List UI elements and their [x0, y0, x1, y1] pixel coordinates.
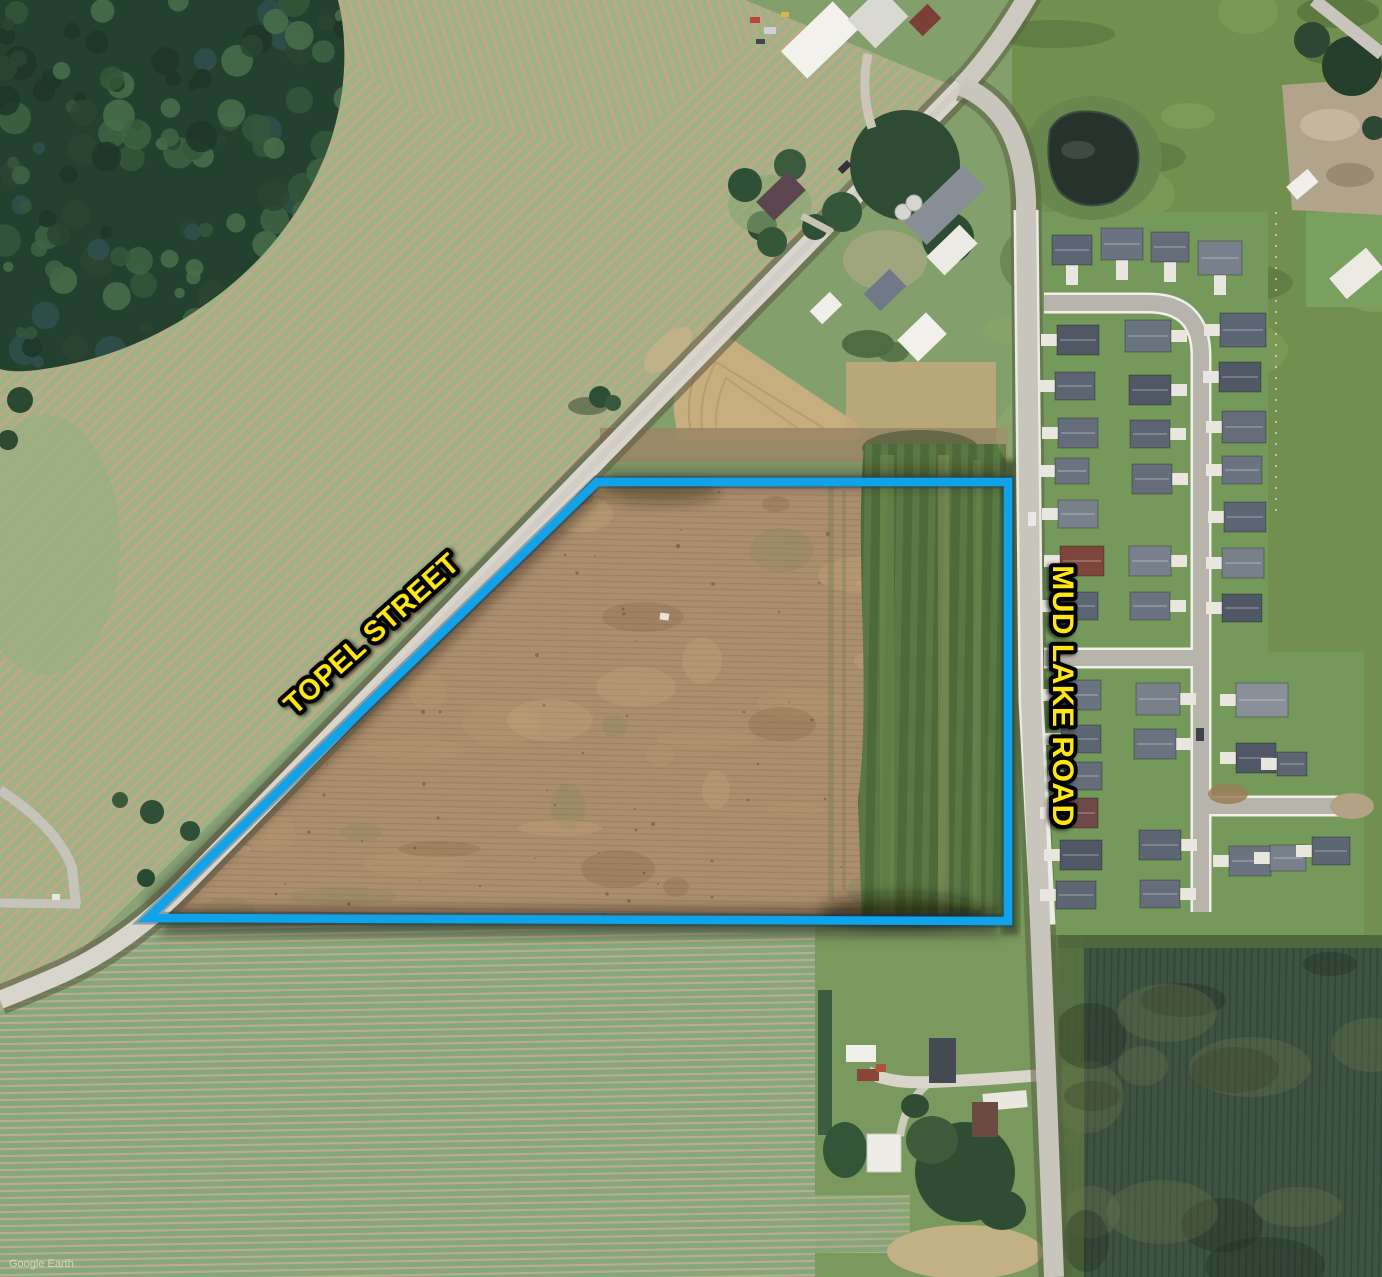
- soil-speck: [824, 798, 827, 801]
- soil-speck: [421, 710, 425, 714]
- soil-mottle: [507, 699, 593, 741]
- soil-speck: [626, 715, 629, 718]
- soil-mottle: [766, 803, 826, 815]
- driveway: [1164, 262, 1176, 282]
- soil-speck: [651, 822, 655, 826]
- tree-canopy: [132, 119, 143, 130]
- soil-speck: [635, 640, 637, 642]
- tree-canopy: [91, 0, 115, 23]
- soil-speck: [818, 582, 820, 584]
- soil-speck: [743, 711, 746, 714]
- tree-canopy: [64, 23, 81, 40]
- tree-canopy: [2, 18, 15, 31]
- driveway: [1254, 852, 1270, 864]
- tree-canopy: [12, 166, 30, 184]
- driveway: [1213, 855, 1229, 867]
- corn-mottle: [1254, 1187, 1342, 1227]
- tree-canopy: [24, 327, 37, 340]
- soil-mottle: [682, 638, 722, 684]
- soil-speck: [710, 895, 713, 898]
- tree-canopy: [263, 137, 284, 158]
- soil-speck: [422, 782, 426, 786]
- corn-mottle: [1106, 1180, 1218, 1244]
- soil-speck: [535, 653, 539, 657]
- soil-mottle: [581, 850, 655, 888]
- tree-canopy: [3, 262, 13, 272]
- tree-canopy: [184, 224, 201, 241]
- driveway: [1180, 693, 1196, 705]
- driveway: [1039, 380, 1055, 392]
- soil-speck: [534, 857, 536, 859]
- driveway: [1204, 324, 1220, 336]
- tree-canopy: [194, 48, 217, 71]
- tree-canopy: [161, 98, 181, 118]
- soil-speck: [594, 555, 596, 557]
- tree-canopy: [192, 69, 211, 88]
- soil-mottle: [663, 877, 689, 897]
- tree-canopy: [174, 288, 184, 298]
- tree-canopy: [317, 15, 334, 32]
- watermark: Google Earth: [9, 1258, 74, 1270]
- tree-canopy: [71, 100, 97, 126]
- driveway: [1171, 330, 1187, 342]
- soil-mottle: [762, 496, 790, 512]
- soil-speck: [680, 529, 682, 531]
- soil-speck: [418, 879, 420, 881]
- soil-speck: [275, 893, 278, 896]
- corn-mottle: [1053, 1003, 1127, 1069]
- dirt-road-end: [1330, 793, 1374, 819]
- soil-speck: [347, 902, 351, 906]
- tree-canopy: [92, 142, 122, 172]
- soil-speck: [747, 799, 750, 802]
- tree-canopy: [161, 250, 179, 268]
- soil-mottle: [409, 674, 447, 710]
- driveway: [1261, 758, 1277, 770]
- driveway: [1206, 602, 1222, 614]
- silo: [906, 195, 922, 211]
- soil-speck: [582, 752, 585, 755]
- tree-canopy: [241, 35, 264, 58]
- tree-canopy: [130, 271, 157, 298]
- tree-canopy: [45, 260, 64, 279]
- driveway: [1176, 738, 1192, 750]
- soil-speck: [811, 719, 814, 722]
- tree-canopy: [216, 135, 226, 145]
- driveway: [1208, 511, 1224, 523]
- tree-canopy: [125, 247, 153, 275]
- road-label-mud-lake-road: MUD LAKE ROAD: [1046, 565, 1079, 827]
- driveway: [1214, 275, 1226, 295]
- soil-speck: [598, 852, 600, 854]
- soil-speck: [605, 892, 609, 896]
- scrub-mottle: [1161, 103, 1215, 129]
- soil-mottle: [702, 771, 730, 809]
- tree-canopy: [110, 247, 129, 266]
- farmstead-south: [815, 925, 1045, 1277]
- driveway: [1066, 265, 1078, 285]
- tree-canopy: [20, 200, 32, 212]
- soil-speck: [840, 866, 842, 868]
- soil-speck: [788, 701, 790, 703]
- driveway: [1116, 260, 1128, 280]
- driveway: [1181, 839, 1197, 851]
- soil-speck: [543, 704, 546, 707]
- soil-speck: [575, 571, 578, 574]
- driveway: [1041, 334, 1057, 346]
- driveway: [1180, 888, 1196, 900]
- soil-speck: [711, 860, 714, 863]
- soil-mottle: [340, 823, 382, 841]
- driveway: [1206, 421, 1222, 433]
- soil-speck: [326, 764, 328, 766]
- soil-mottle: [646, 744, 674, 766]
- tree-canopy: [286, 87, 313, 114]
- soil-speck: [634, 808, 636, 810]
- tree-canopy: [22, 337, 42, 357]
- tree-canopy: [258, 180, 289, 211]
- soil-speck: [546, 789, 548, 791]
- corn-mottle: [1118, 1046, 1168, 1086]
- soil-mottle: [365, 739, 465, 761]
- dry-grass-patch: [887, 1225, 1043, 1277]
- soil-speck: [361, 840, 363, 842]
- soil-speck: [436, 816, 439, 819]
- driveway: [1171, 384, 1187, 396]
- tree-canopy: [166, 71, 181, 86]
- dirt-patch: [1208, 784, 1248, 804]
- soil-mottle: [750, 528, 814, 572]
- soil-mottle: [602, 715, 628, 737]
- tree-canopy: [285, 21, 314, 50]
- soil-mottle: [398, 841, 480, 857]
- soil-mottle: [289, 887, 397, 905]
- soil-mottle: [602, 602, 684, 632]
- driveway: [1170, 428, 1186, 440]
- driveway: [1170, 600, 1186, 612]
- tree-canopy: [86, 31, 109, 54]
- driveway: [1203, 371, 1219, 383]
- tree-canopy: [103, 282, 131, 310]
- tree-canopy: [100, 226, 113, 239]
- soil-speck: [284, 883, 286, 885]
- tree-row: [818, 990, 832, 1135]
- driveway: [1039, 465, 1055, 477]
- driveway: [1206, 557, 1222, 569]
- soil-speck: [307, 830, 311, 834]
- aerial-map: TOPEL STREET MUD LAKE ROAD Google Earth: [0, 0, 1382, 1277]
- corn-mottle: [1117, 984, 1217, 1042]
- pond: [1022, 96, 1162, 220]
- soil-speck: [657, 883, 659, 885]
- farm-house-dark: [929, 1038, 956, 1083]
- white-shed: [846, 1045, 876, 1062]
- aerial-map-canvas: TOPEL STREET MUD LAKE ROAD Google Earth: [0, 0, 1382, 1277]
- soil-speck: [627, 899, 630, 902]
- tree-canopy: [62, 200, 91, 229]
- soil-speck: [778, 611, 780, 613]
- soil-mottle: [657, 730, 757, 748]
- field-south: [0, 922, 818, 1277]
- soil-speck: [479, 885, 481, 887]
- tree-canopy: [217, 99, 245, 127]
- driveway: [1042, 427, 1058, 439]
- farm-house-brown: [972, 1102, 998, 1137]
- soil-speck: [414, 847, 417, 850]
- tree-canopy: [59, 166, 77, 184]
- tree-canopy: [140, 323, 152, 335]
- tree-canopy: [242, 114, 271, 143]
- car: [1028, 512, 1036, 526]
- driveway: [1296, 845, 1312, 857]
- corn-field: [1050, 935, 1382, 1277]
- soil-speck: [322, 793, 325, 796]
- soil-speck: [643, 872, 646, 875]
- tree-canopy: [186, 270, 200, 284]
- car: [1196, 728, 1204, 741]
- tree-canopy: [87, 239, 109, 261]
- driveway: [1044, 849, 1060, 861]
- tree-canopy: [53, 62, 71, 80]
- soil-speck: [711, 582, 715, 586]
- tree-canopy: [161, 128, 179, 146]
- soil-speck: [676, 544, 680, 548]
- field-equipment: [659, 612, 669, 620]
- tree-canopy: [39, 210, 57, 228]
- tree-canopy: [62, 335, 88, 361]
- soil-speck: [439, 711, 442, 714]
- tree-canopy: [32, 301, 60, 329]
- soil-speck: [564, 554, 566, 556]
- driveway: [1042, 508, 1058, 520]
- corn-mottle: [1063, 1210, 1109, 1272]
- driveway: [1220, 752, 1236, 764]
- soil-speck: [757, 763, 759, 765]
- tree-canopy: [226, 213, 245, 232]
- soil-mottle: [748, 707, 816, 741]
- soil-speck: [623, 613, 626, 616]
- driveway: [1172, 473, 1188, 485]
- tree-canopy: [33, 142, 45, 154]
- driveway: [1171, 555, 1187, 567]
- driveway: [1220, 694, 1236, 706]
- tree-canopy: [186, 121, 217, 152]
- soil-speck: [635, 829, 638, 832]
- soil-speck: [622, 608, 625, 611]
- white-barn-south: [867, 1134, 901, 1172]
- driveway: [1206, 464, 1222, 476]
- tree-canopy: [151, 47, 179, 75]
- soil-mottle: [518, 820, 602, 836]
- corn-mottle: [1189, 1037, 1311, 1097]
- corn-mottle: [1303, 952, 1357, 976]
- driveway: [1040, 889, 1056, 901]
- tree-canopy: [100, 66, 124, 90]
- tree-canopy: [312, 40, 335, 63]
- soil-mottle: [596, 667, 676, 707]
- soil-speck: [554, 804, 556, 806]
